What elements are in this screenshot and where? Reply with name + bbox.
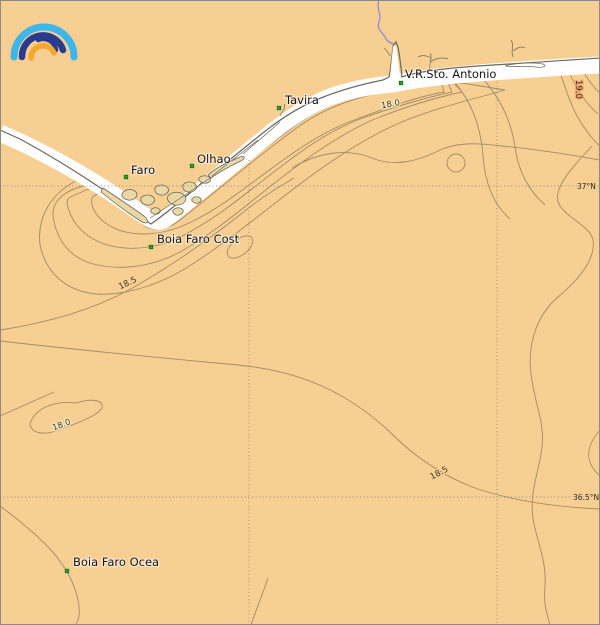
place-label-tavira: Tavira [284,93,319,107]
place-label-vrsa: V.R.Sto. Antonio [405,67,496,81]
latitude-label-36-5n: 36.5°N [573,493,599,502]
isotherm-label-19-patch: 19.0 [573,80,583,99]
marker-boia-faro-ocea [65,569,69,573]
latitude-label-37n: 37°N [577,182,596,191]
place-label-faro: Faro [131,163,155,177]
marker-faro [124,175,128,179]
sst-map-svg: Faro Olhao Tavira V.R.Sto. Antonio Boia … [0,0,600,625]
marker-tavira [277,106,281,110]
place-label-olhao: Olhao [197,152,231,166]
marker-boia-faro-cost [149,245,153,249]
marker-olhao [190,164,194,168]
buoy-label-boia-faro-ocea: Boia Faro Ocea [73,555,159,569]
sst-map-canvas[interactable]: Faro Olhao Tavira V.R.Sto. Antonio Boia … [0,0,600,625]
buoy-label-boia-faro-cost: Boia Faro Cost [157,232,240,246]
marker-vrsa [399,81,403,85]
